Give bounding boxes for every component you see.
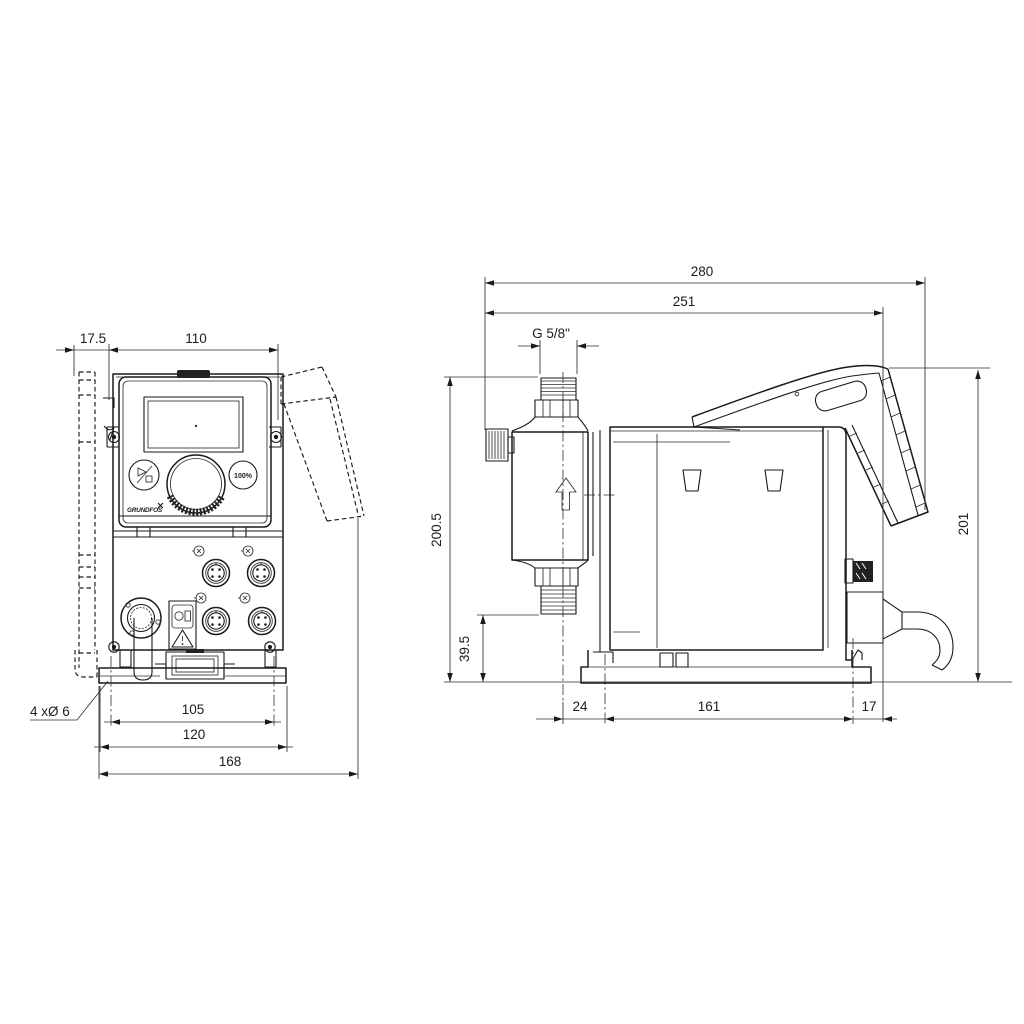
start-stop-icon <box>137 466 152 483</box>
dim-overall-depth: 280 <box>485 264 925 510</box>
base-plate-front <box>99 668 286 683</box>
connection-sockets <box>192 546 276 635</box>
dim-label-depth-to-housing-rear: 251 <box>673 294 696 309</box>
side-view: 280 251 G 5/8" 200.5 <box>429 264 1012 724</box>
connection-thread-top <box>541 378 576 400</box>
centerlines <box>563 372 853 724</box>
panel-top-tab <box>177 370 210 378</box>
dim-label-overall-height: 201 <box>956 513 971 536</box>
holes-note-label: 4 xØ 6 <box>30 704 70 719</box>
dim-label-connection-thread: G 5/8" <box>532 326 570 341</box>
dim-label-hole-spacing: 105 <box>182 702 205 717</box>
warning-triangle-icon <box>172 630 193 647</box>
socket-function-icon <box>241 546 253 556</box>
dim-label-head-center-to-first-hole: 24 <box>572 699 588 714</box>
dim-label-bracket-offset: 17.5 <box>80 331 106 346</box>
suction-valve-bottom <box>512 560 588 614</box>
deaeration-knob[interactable] <box>486 429 514 461</box>
socket-function-icon <box>238 593 250 603</box>
power-cable-gland <box>847 592 953 670</box>
dim-label-plate-width: 120 <box>183 727 206 742</box>
grip-recess <box>683 470 701 491</box>
m12-socket[interactable] <box>249 608 276 635</box>
control-cube-side <box>692 366 928 526</box>
vent-screw <box>845 559 873 583</box>
capacity-100-button[interactable]: 100% <box>229 461 257 489</box>
dim-label-hole-spacing: 161 <box>698 699 721 714</box>
dim-bottom-chain: 24 161 17 <box>536 699 897 724</box>
control-panel: 100% GRUNDFOS <box>119 370 271 527</box>
capacity-button-label: 100% <box>234 473 253 480</box>
dim-connection-thread: G 5/8" <box>518 326 599 374</box>
dim-overall-width: 168 <box>99 518 358 779</box>
dim-label-height-to-connection: 200.5 <box>429 513 444 547</box>
pump-dimensional-drawing: 100% GRUNDFOS <box>0 0 1024 1024</box>
m12-socket[interactable] <box>203 560 230 587</box>
dim-label-body-width: 110 <box>185 331 207 346</box>
front-mounting-plate <box>99 649 286 683</box>
hidden-dosing-head-outline <box>281 367 364 521</box>
note-mounting-holes: 4 xØ 6 <box>30 681 108 720</box>
display-screen <box>144 397 243 452</box>
power-cable <box>917 612 953 670</box>
front-screw-top-left <box>109 432 120 443</box>
rear-connections <box>845 559 953 670</box>
rail-clamp <box>155 649 235 679</box>
dim-label-overall-depth: 280 <box>691 264 714 279</box>
base-plate-side <box>581 650 871 683</box>
connection-thread-bottom <box>541 586 576 614</box>
front-screw-top-right <box>271 432 282 443</box>
warning-label <box>169 601 196 649</box>
dim-bracket-offset: 17.5 <box>56 331 278 400</box>
dim-height-to-connection: 200.5 <box>429 377 538 682</box>
brand-logo: GRUNDFOS <box>127 507 163 514</box>
dim-label-height-to-valve: 39.5 <box>457 636 472 662</box>
dim-height-to-valve: 39.5 <box>457 615 539 682</box>
grip-recess <box>765 470 783 491</box>
dim-overall-height: 201 <box>889 368 990 682</box>
m12-socket[interactable] <box>203 608 230 635</box>
socket-function-icon <box>192 546 204 556</box>
flow-direction-arrow <box>556 478 576 510</box>
dim-plate-width: 120 <box>94 686 293 752</box>
m12-socket[interactable] <box>248 560 275 587</box>
click-wheel-knob[interactable] <box>167 455 225 513</box>
dim-label-overall-width: 168 <box>219 754 242 769</box>
dosing-head-body <box>512 432 588 560</box>
cube-handle-slot <box>813 379 869 413</box>
mounting-ears <box>107 427 282 652</box>
dimensional-drawing-page: 100% GRUNDFOS <box>0 0 1024 1024</box>
rear-cover <box>823 427 852 660</box>
front-view: 100% GRUNDFOS <box>30 331 364 779</box>
discharge-valve-top <box>512 378 588 431</box>
dosing-head <box>486 378 600 652</box>
side-dimensions: 280 251 G 5/8" 200.5 <box>429 264 1012 724</box>
dim-label-rear-hole-to-gland: 17 <box>861 699 876 714</box>
motor-housing <box>610 427 852 660</box>
start-stop-button[interactable] <box>129 460 159 490</box>
wall-bracket-hidden-outline <box>75 372 114 677</box>
